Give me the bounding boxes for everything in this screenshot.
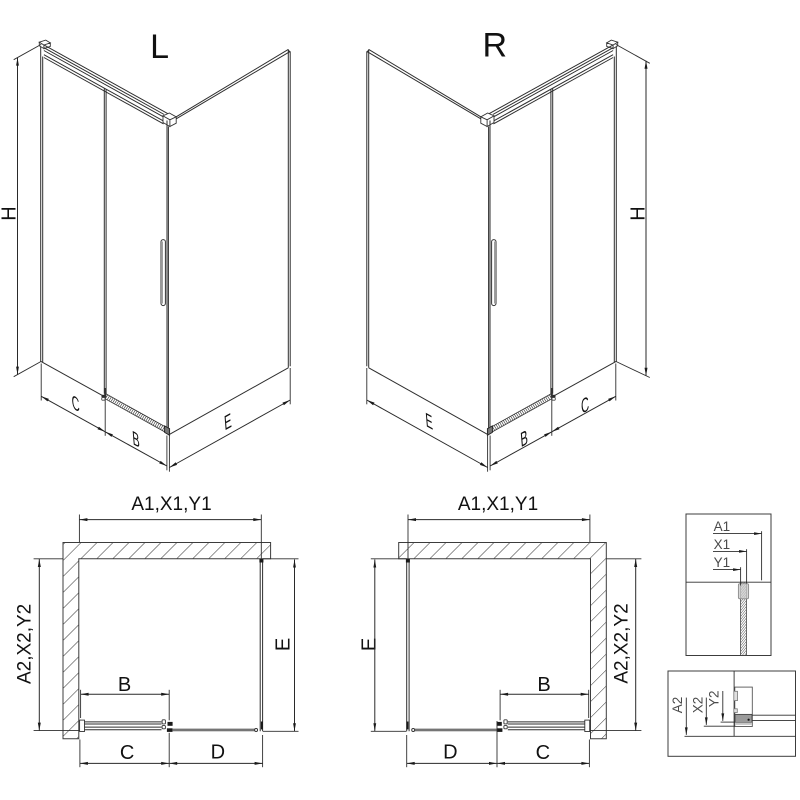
svg-text:R: R xyxy=(483,27,508,65)
svg-text:A2,X2,Y2: A2,X2,Y2 xyxy=(612,603,633,683)
svg-text:A2,X2,Y2: A2,X2,Y2 xyxy=(15,604,36,684)
svg-text:H: H xyxy=(628,206,650,220)
svg-text:C: C xyxy=(120,742,134,764)
svg-text:A1,X1,Y1: A1,X1,Y1 xyxy=(458,494,538,515)
svg-text:Y1: Y1 xyxy=(714,555,731,570)
svg-text:L: L xyxy=(150,28,169,66)
svg-text:B: B xyxy=(537,674,550,696)
svg-text:X1: X1 xyxy=(714,537,731,552)
svg-text:X2: X2 xyxy=(690,697,705,714)
svg-text:A1: A1 xyxy=(714,519,731,534)
svg-text:Y2: Y2 xyxy=(707,691,722,708)
svg-text:E: E xyxy=(359,638,381,651)
svg-text:H: H xyxy=(0,206,20,220)
svg-text:C: C xyxy=(536,742,550,764)
svg-text:B: B xyxy=(118,674,131,696)
svg-text:A2: A2 xyxy=(670,697,685,714)
svg-text:D: D xyxy=(211,741,225,763)
svg-text:D: D xyxy=(443,741,457,763)
svg-text:A1,X1,Y1: A1,X1,Y1 xyxy=(131,494,211,515)
svg-text:E: E xyxy=(273,638,295,651)
